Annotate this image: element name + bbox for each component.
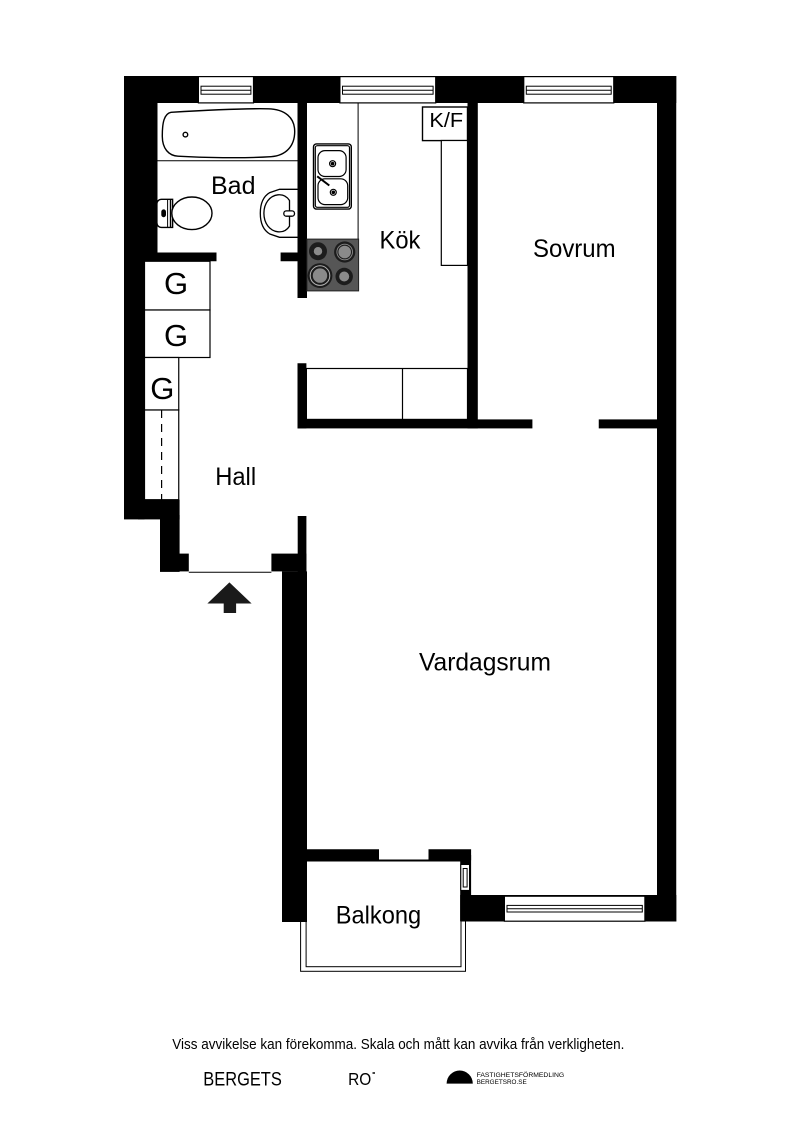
svg-text:Hall: Hall	[215, 463, 256, 491]
svg-text:Bad: Bad	[211, 172, 255, 200]
svg-text:Vardagsrum: Vardagsrum	[419, 649, 551, 676]
svg-text:BERGETS: BERGETS	[203, 1068, 282, 1089]
svg-text:K/F: K/F	[429, 110, 463, 132]
svg-text:FASTIGHETSFÖRMEDLING: FASTIGHETSFÖRMEDLING	[477, 1071, 565, 1079]
svg-text:RO: RO	[348, 1069, 371, 1089]
svg-text:Kök: Kök	[380, 227, 422, 255]
svg-text:Sovrum: Sovrum	[533, 236, 616, 264]
svg-text:G: G	[164, 318, 188, 353]
svg-text:G: G	[150, 371, 174, 406]
svg-text:Balkong: Balkong	[336, 902, 421, 930]
svg-text:Viss avvikelse kan förekomma.: Viss avvikelse kan förekomma. Skala och …	[172, 1036, 624, 1053]
svg-text:G: G	[164, 266, 188, 301]
svg-text:BERGETSRO.SE: BERGETSRO.SE	[477, 1079, 528, 1086]
